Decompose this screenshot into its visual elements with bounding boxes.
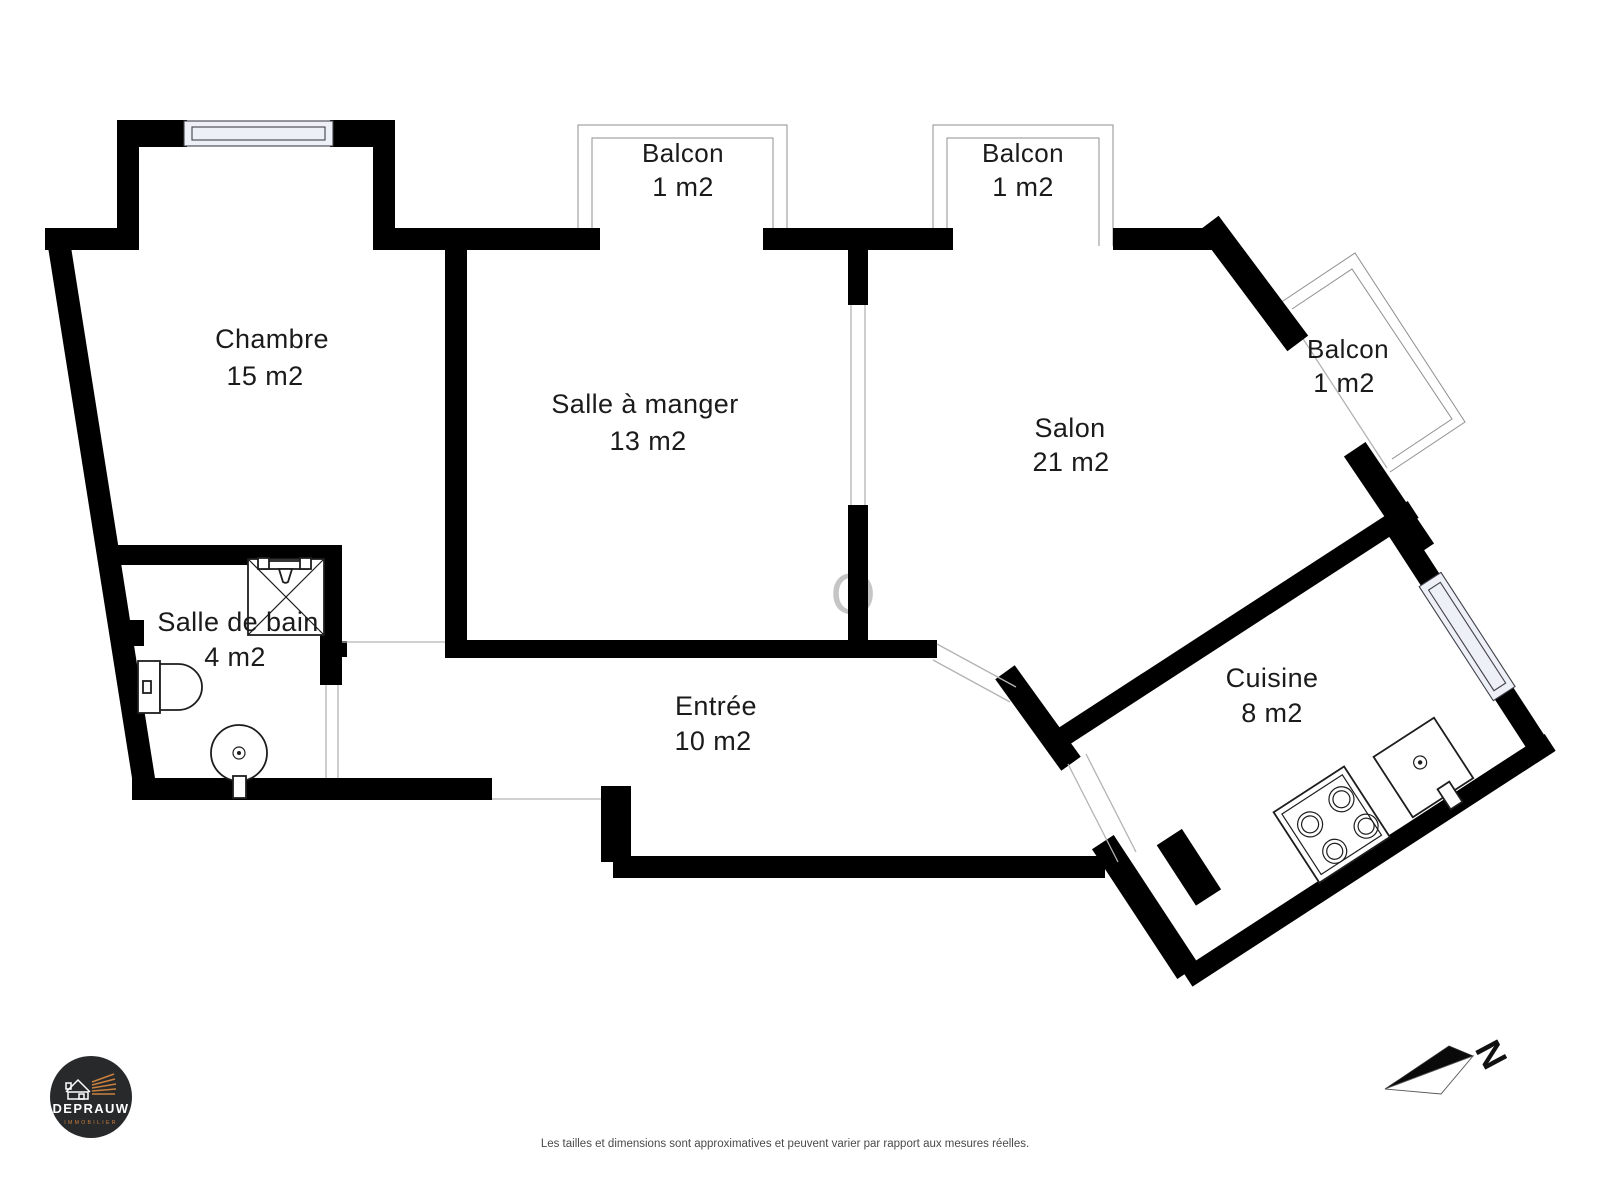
balcony-2: Balcon 1 m2 (933, 125, 1113, 246)
north-label: N (1467, 1033, 1515, 1075)
label-salle-de-bain: Salle de bain (157, 607, 318, 637)
entree-kitchen-opening (1068, 764, 1118, 862)
walls (45, 120, 1416, 961)
balcony-3-label: Balcon (1307, 334, 1389, 364)
disclaimer-text: Les tailles et dimensions sont approxima… (541, 1138, 1029, 1150)
floor-plan-page: O Balcon 1 m2 Balcon 1 m2 Balcon 1 m2 (0, 0, 1600, 1200)
balcony-1-label: Balcon (642, 138, 724, 168)
label-cuisine: Cuisine (1226, 663, 1319, 693)
bedroom-window (184, 121, 333, 146)
kitchen-top-wall (1040, 501, 1418, 756)
agency-logo: DEPRAUW IMMOBILIER (50, 1056, 132, 1138)
logo-tagline-text: IMMOBILIER (64, 1120, 118, 1126)
area-chambre: 15 m2 (226, 361, 303, 391)
balcony-3-inner-outline (1292, 269, 1452, 459)
logo-brand-text: DEPRAUW (53, 1101, 130, 1116)
label-salle-a-manger: Salle à manger (551, 389, 738, 419)
balcony-1-area: 1 m2 (652, 172, 714, 202)
balcony-3: Balcon 1 m2 (1280, 253, 1465, 472)
balcony-3-area: 1 m2 (1313, 368, 1375, 398)
balcony-1: Balcon 1 m2 (578, 125, 787, 246)
kitchen-bottom-wall (1182, 734, 1556, 987)
label-entree: Entrée (675, 691, 757, 721)
area-cuisine: 8 m2 (1241, 698, 1303, 728)
area-salle-a-manger: 13 m2 (609, 426, 686, 456)
area-entree: 10 m2 (674, 726, 751, 756)
balcony-2-label: Balcon (982, 138, 1064, 168)
kitchen-window (1419, 572, 1515, 700)
area-salle-de-bain: 4 m2 (204, 642, 266, 672)
area-salon: 21 m2 (1032, 447, 1109, 477)
balcony-2-area: 1 m2 (992, 172, 1054, 202)
north-arrow: N (1385, 1033, 1516, 1094)
label-salon: Salon (1034, 413, 1105, 443)
kitchen-wall-pier (1157, 829, 1221, 906)
kitchen-block (1035, 501, 1566, 987)
entree-salon-opening (937, 644, 1016, 687)
toilet-icon (138, 661, 202, 713)
bathroom-fixtures (138, 558, 324, 798)
label-chambre: Chambre (215, 324, 329, 354)
